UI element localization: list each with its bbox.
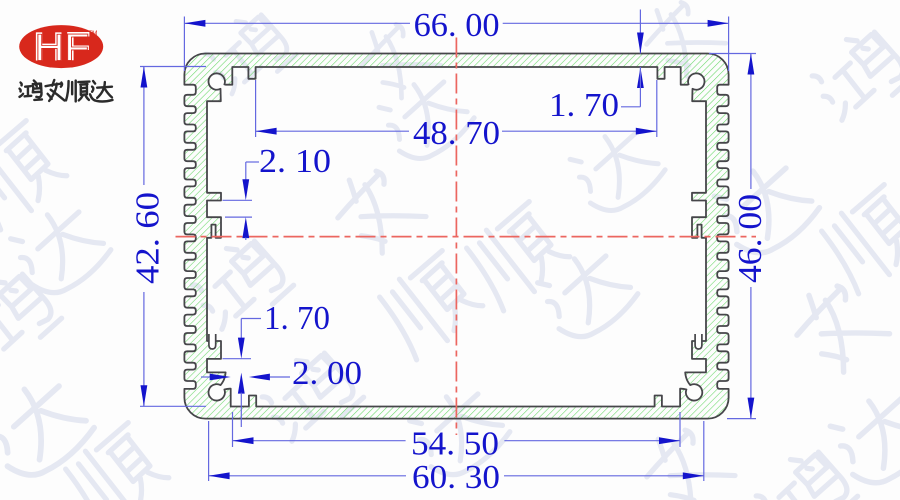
svg-text:46. 00: 46. 00: [732, 194, 769, 283]
svg-text:42. 60: 42. 60: [130, 192, 167, 284]
svg-text:HF: HF: [35, 28, 90, 70]
svg-text:2. 10: 2. 10: [259, 143, 331, 180]
svg-text:TM: TM: [88, 30, 97, 37]
svg-text:54. 50: 54. 50: [411, 426, 499, 463]
svg-text:60. 30: 60. 30: [412, 459, 500, 496]
svg-text:48. 70: 48. 70: [413, 115, 500, 152]
svg-text:1. 70: 1. 70: [549, 87, 619, 124]
svg-text:2. 00: 2. 00: [292, 355, 362, 392]
svg-text:1. 70: 1. 70: [264, 300, 330, 337]
svg-text:66. 00: 66. 00: [414, 7, 500, 44]
